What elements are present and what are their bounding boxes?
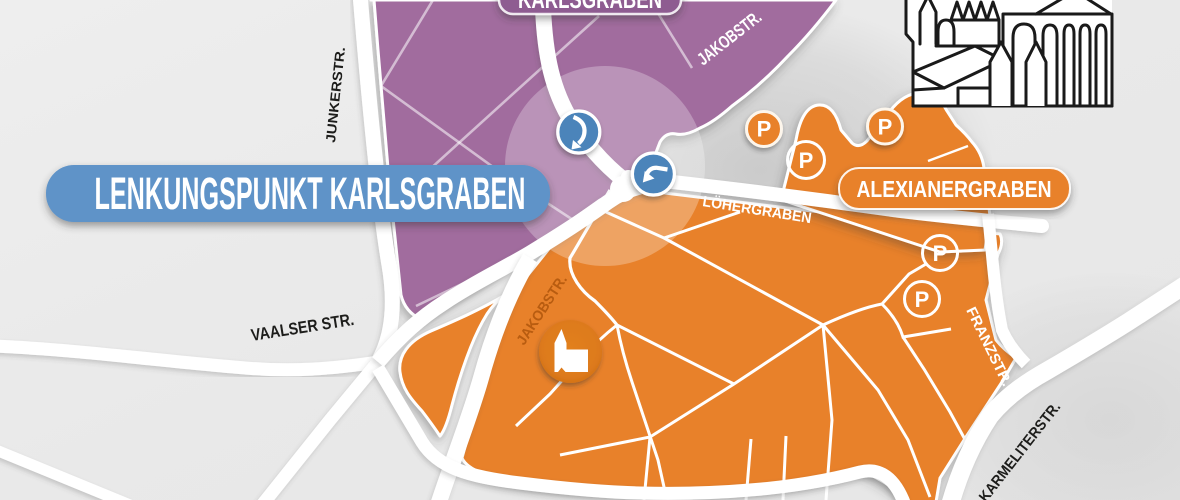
- svg-text:ALEXIANERGRABEN: ALEXIANERGRABEN: [857, 176, 1052, 202]
- svg-text:P: P: [878, 115, 893, 140]
- svg-text:P: P: [915, 287, 930, 312]
- svg-text:P: P: [799, 148, 814, 173]
- svg-text:P: P: [757, 117, 772, 142]
- svg-text:LENKUNGSPUNKT KARLSGRABEN: LENKUNGSPUNKT KARLSGRABEN: [95, 168, 526, 219]
- svg-text:KARLSGRABEN: KARLSGRABEN: [518, 0, 662, 14]
- svg-text:P: P: [933, 241, 948, 266]
